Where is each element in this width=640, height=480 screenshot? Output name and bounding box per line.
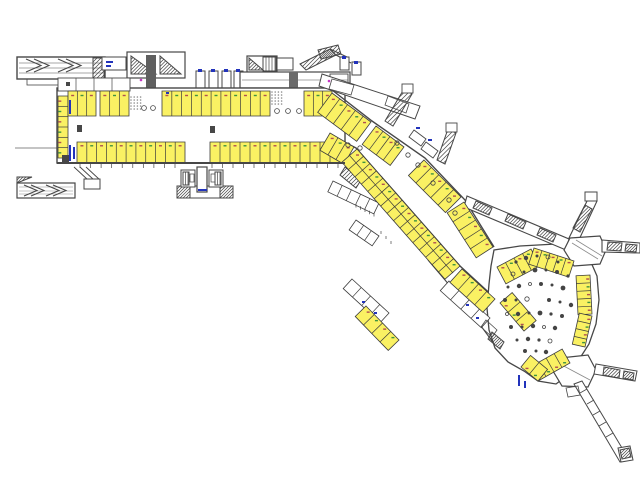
rotunda-east-rooms: [576, 275, 592, 315]
gate-stub: [209, 71, 218, 88]
jet-bridge-line: [86, 167, 100, 180]
room-strip-lower: [77, 142, 185, 163]
room-strip-upper: [162, 91, 270, 116]
jet-bridge-line: [74, 167, 88, 180]
room-strip-upper: [68, 91, 96, 116]
floor-plan-svg: [0, 0, 640, 480]
room-strip-upper: [100, 91, 129, 116]
gate-box: [421, 142, 438, 158]
south-entrance-core: [197, 167, 207, 192]
arm-cap: [402, 84, 413, 93]
floor-plan-layers: [11, 45, 640, 462]
annex-ticks: [381, 231, 391, 244]
room-strip-lower: [210, 142, 340, 163]
gate-stub: [222, 71, 231, 88]
jet-bridge-line: [80, 167, 94, 180]
gate-box: [409, 130, 426, 146]
floor-plan: [0, 0, 640, 480]
arm-cap: [585, 192, 597, 201]
room-strip-outer: [362, 126, 404, 165]
pier-room: [277, 58, 293, 70]
gate-stub: [196, 71, 205, 88]
annex-row: [349, 220, 379, 246]
pier-annex: [27, 79, 59, 85]
hall-core: [289, 72, 298, 88]
bridge-box: [84, 179, 100, 189]
pier-corner-hatch: [11, 177, 38, 183]
wall-ticks: [80, 164, 175, 168]
info-box: [102, 57, 126, 70]
arm-cap: [446, 123, 457, 132]
room-strip-west: [58, 96, 68, 158]
wall-ticks: [212, 164, 338, 168]
